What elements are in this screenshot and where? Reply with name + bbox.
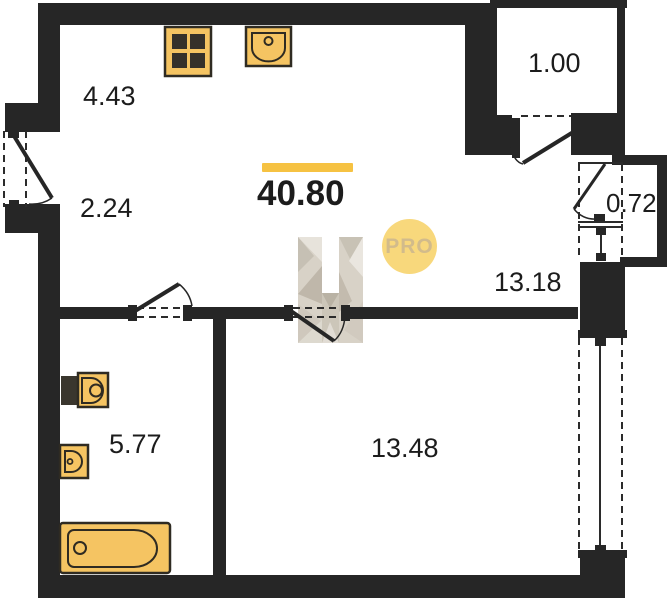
left-window-door	[14, 136, 52, 204]
area-label-bathroom: 5.77	[109, 431, 162, 458]
pro-badge: PRO	[382, 219, 437, 274]
area-label-kitchen-living: 13.18	[494, 269, 562, 296]
bathtub-icon	[60, 523, 170, 573]
total-area-accent-bar	[262, 163, 353, 172]
kitchen-sink-icon	[246, 27, 291, 66]
toilet-icon	[61, 373, 108, 407]
duct-window	[578, 222, 623, 261]
total-area-label: 40.80	[257, 176, 345, 211]
bedroom-window	[595, 338, 606, 553]
area-label-balcony: 1.00	[528, 50, 581, 77]
stove-icon	[165, 27, 211, 76]
floor-plan: 4.43 2.24 1.00 0.72 13.18 5.77 13.48 40.…	[0, 0, 669, 600]
washbasin-icon	[60, 445, 88, 478]
pro-badge-label: PRO	[385, 235, 434, 259]
area-label-duct: 0.72	[606, 190, 657, 216]
area-label-bedroom: 13.48	[371, 435, 439, 462]
bedroom-door	[291, 311, 345, 341]
balcony-door	[511, 131, 575, 164]
area-label-hall2: 2.24	[80, 195, 133, 222]
area-label-corridor: 4.43	[83, 83, 136, 110]
bathroom-door	[135, 284, 192, 311]
